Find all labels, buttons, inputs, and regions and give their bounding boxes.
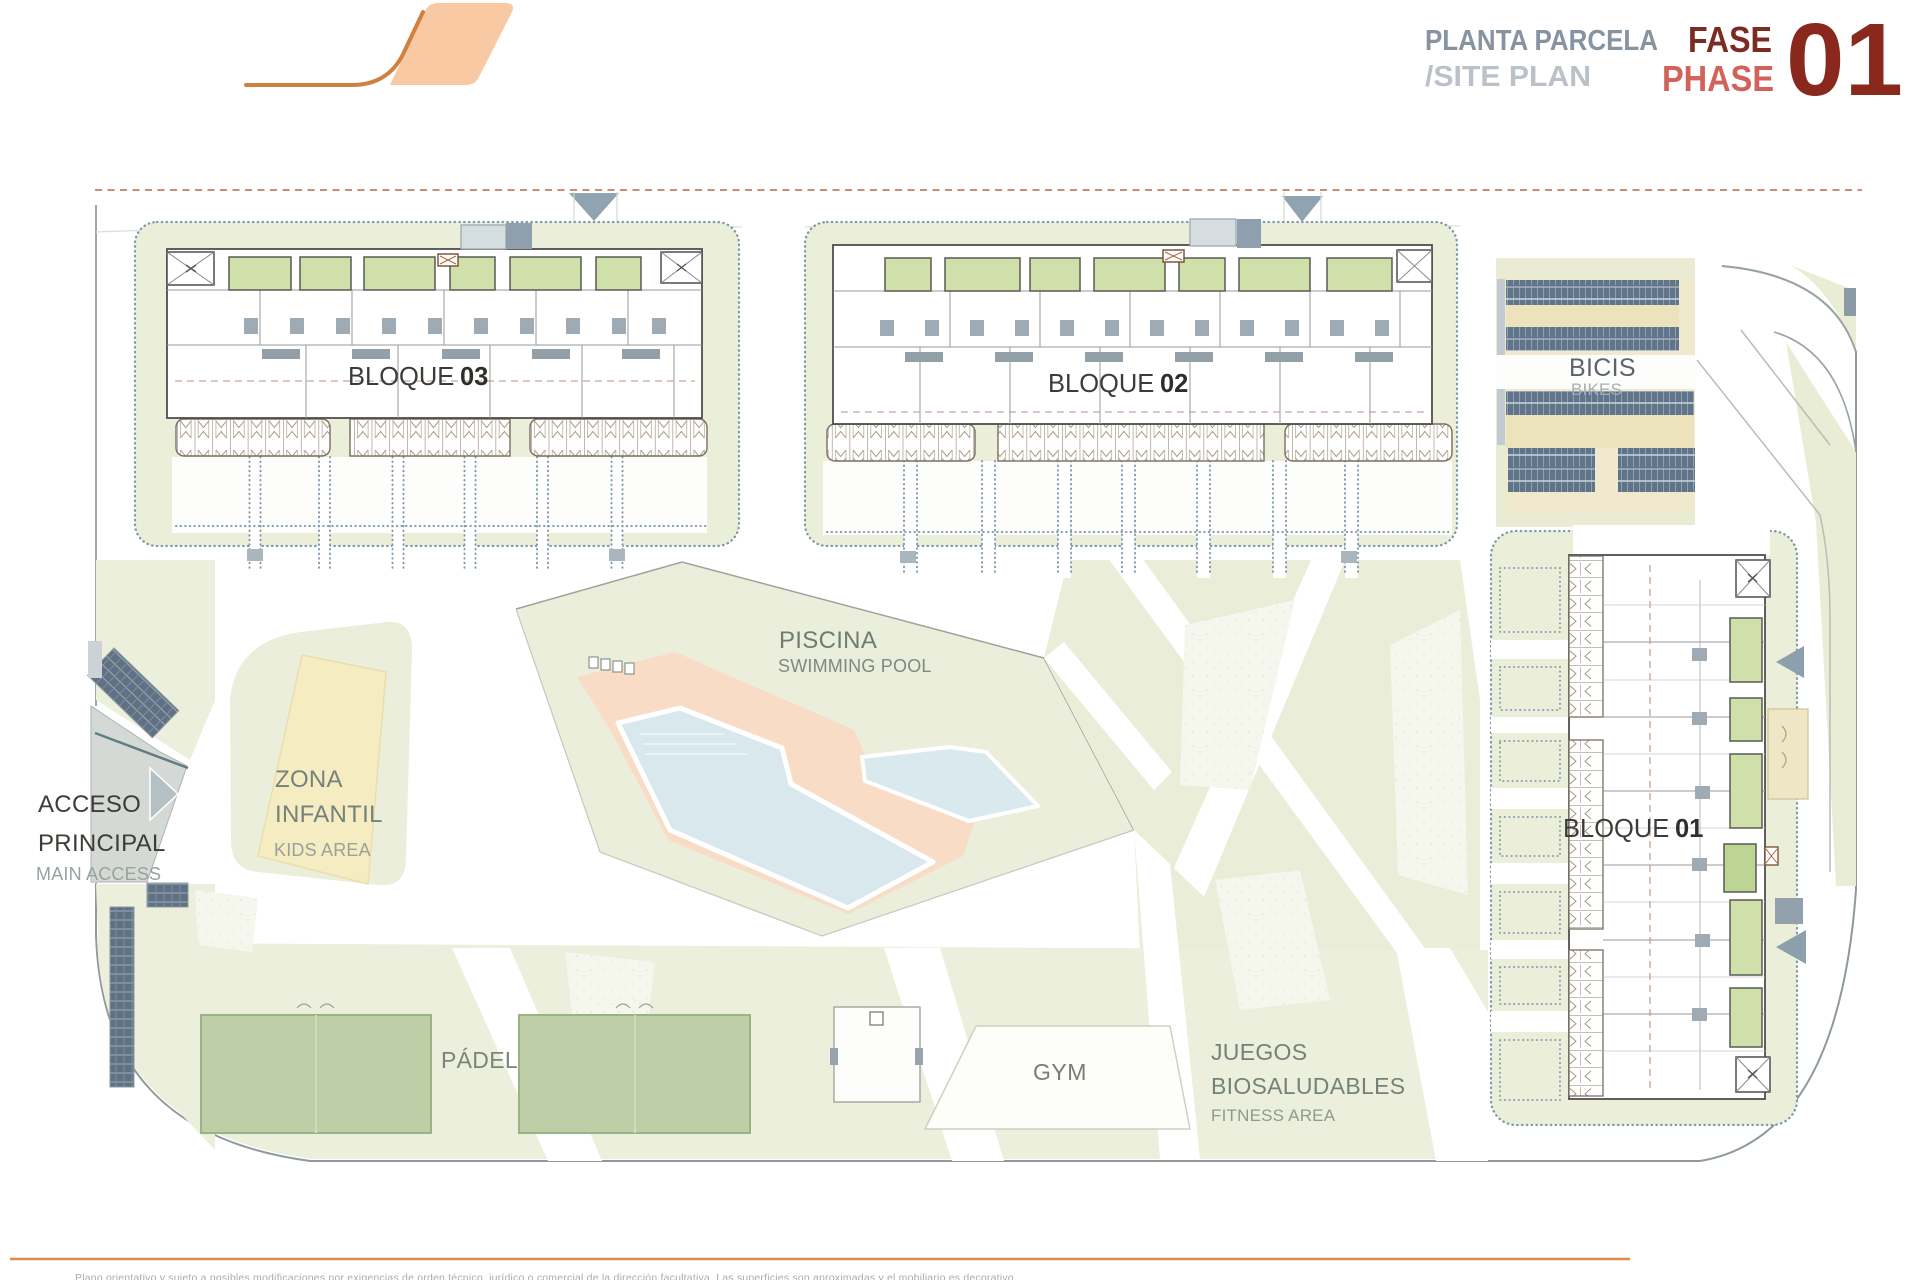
svg-text:JUEGOS: JUEGOS [1211,1039,1307,1065]
svg-text:/SITE PLAN: /SITE PLAN [1425,61,1591,93]
svg-text:BLOQUE: BLOQUE [348,363,454,391]
svg-text:PHASE: PHASE [1662,58,1774,99]
svg-text:BLOQUE: BLOQUE [1563,815,1669,843]
svg-text:02: 02 [1160,370,1188,398]
svg-text:PISCINA: PISCINA [779,627,877,654]
svg-text:ACCESO: ACCESO [38,791,141,818]
svg-text:GYM: GYM [1033,1059,1087,1085]
svg-text:BIOSALUDABLES: BIOSALUDABLES [1211,1073,1405,1099]
svg-text:01: 01 [1675,815,1703,843]
svg-text:INFANTIL: INFANTIL [275,801,383,828]
svg-text:03: 03 [460,363,488,391]
svg-text:BIKES: BIKES [1571,380,1622,399]
svg-text:MAIN ACCESS: MAIN ACCESS [36,864,161,884]
svg-text:PLANTA PARCELA: PLANTA PARCELA [1425,25,1658,57]
svg-text:ZONA: ZONA [275,766,343,793]
svg-text:PRINCIPAL: PRINCIPAL [38,830,166,857]
svg-text:BLOQUE: BLOQUE [1048,370,1154,398]
svg-text:FASE: FASE [1688,19,1772,60]
svg-text:01: 01 [1786,2,1903,117]
svg-text:Plano orientativo y sujeto a p: Plano orientativo y sujeto a posibles mo… [75,1272,1017,1280]
svg-text:KIDS AREA: KIDS AREA [274,840,371,860]
svg-text:FITNESS AREA: FITNESS AREA [1211,1106,1336,1125]
svg-text:PÁDEL: PÁDEL [441,1047,518,1073]
svg-text:SWIMMING POOL: SWIMMING POOL [778,656,932,676]
svg-text:BICIS: BICIS [1569,354,1636,382]
